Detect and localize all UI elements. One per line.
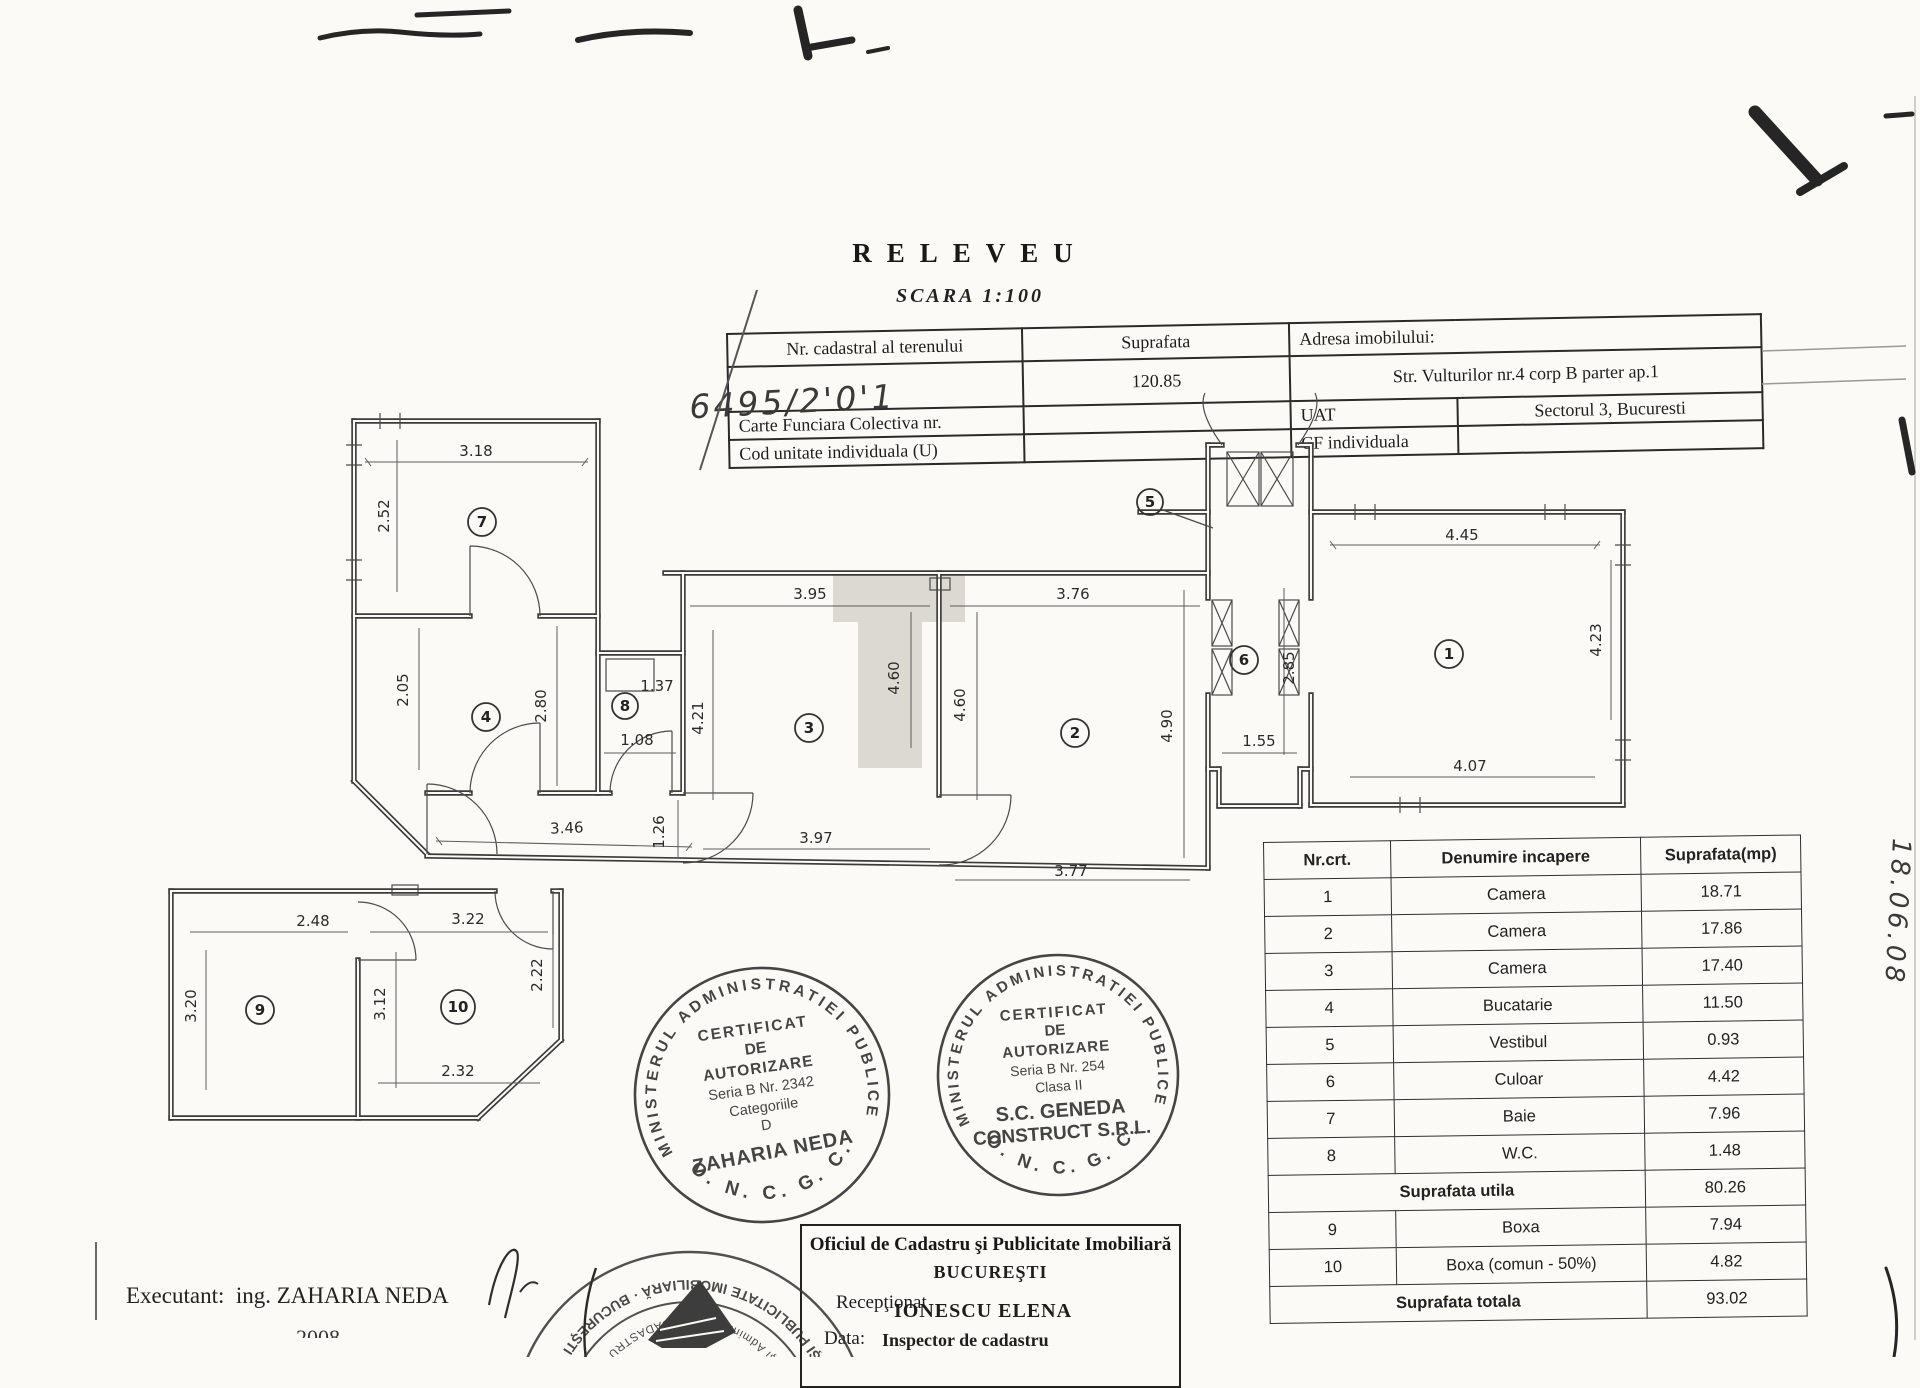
room-number-5: 5 [1145,493,1155,511]
dim-label: 4.23 [1587,623,1605,656]
stamp-line: Clasa II [1035,1076,1083,1095]
dim-label: 3.22 [451,910,484,928]
stamp-line: DE [1044,1021,1066,1039]
stamp-line: DE [744,1039,768,1059]
signature-squiggle [489,1250,518,1318]
stamp-line: D [760,1117,773,1134]
room-numbers: 1 2 3 4 5 6 7 8 9 10 [246,489,1463,1024]
room-number-3: 3 [804,719,814,737]
stamp-zaharia-neda: MINISTERUL ADMINISTRATIEI PUBLICE O. N. … [619,952,906,1239]
handwritten-date: 18.06.08 [1878,838,1916,987]
dim-label: 3.77 [1054,862,1087,880]
handwriting-marks: 6495/2'0'1 18.06.08 [96,290,1916,1357]
plan-details [346,393,1631,960]
handwritten-cadastral-number: 6495/2'0'1 [688,377,896,427]
room-number-9: 9 [255,1001,265,1019]
dim-label: 2.05 [394,673,412,706]
dim-label: 3.76 [1056,585,1089,603]
dim-label: 1.37 [640,677,673,695]
dim-label: 1.55 [1242,732,1275,750]
dim-label: 3.95 [793,585,826,603]
scanned-cadastral-document: { "doc": { "title": "RELEVEU", "scale": … [0,0,1920,1357]
dim-label: 2.80 [532,689,550,722]
room-number-8: 8 [620,697,630,715]
room-number-6: 6 [1239,651,1249,669]
dim-label: 1.26 [650,815,668,848]
dim-label: 4.45 [1445,526,1478,544]
room-number-10: 10 [448,998,469,1016]
scan-lines [1762,96,1915,1340]
room-number-2: 2 [1070,724,1080,742]
dim-label: 2.32 [441,1062,474,1080]
dim-label: 3.18 [459,442,492,460]
dim-label: 3.46 [550,818,584,837]
room-number-4: 4 [481,708,491,726]
dim-label: 2.85 [1280,651,1298,684]
dim-label: 3.97 [799,829,832,847]
floor-plan-drawing: 3.18 2.52 2.05 2.80 1.37 1.08 3.95 4.21 … [0,0,1920,1357]
dim-label: 3.12 [371,987,389,1020]
stamp-cadastre-office-partial: ŞI PUBLICITATE IMOBILIARĂ · BUCUREŞTI şi… [512,1252,868,1357]
dim-label: 4.60 [885,661,903,694]
room-number-7: 7 [477,513,487,531]
dim-label: 4.90 [1158,709,1176,742]
dim-label: 4.60 [951,688,969,721]
dim-label: 4.21 [689,701,707,734]
dim-label: 3.20 [182,989,200,1022]
room-number-1: 1 [1444,645,1454,663]
dim-label: 1.08 [620,731,653,749]
dim-label: 2.52 [375,499,393,532]
dim-label: 4.07 [1453,757,1486,775]
dim-label: 2.22 [528,958,546,991]
stamp-geneda-construct: MINISTERUL ADMINISTRATIEI PUBLICE O. N. … [930,947,1186,1203]
dim-label: 2.48 [296,912,329,930]
